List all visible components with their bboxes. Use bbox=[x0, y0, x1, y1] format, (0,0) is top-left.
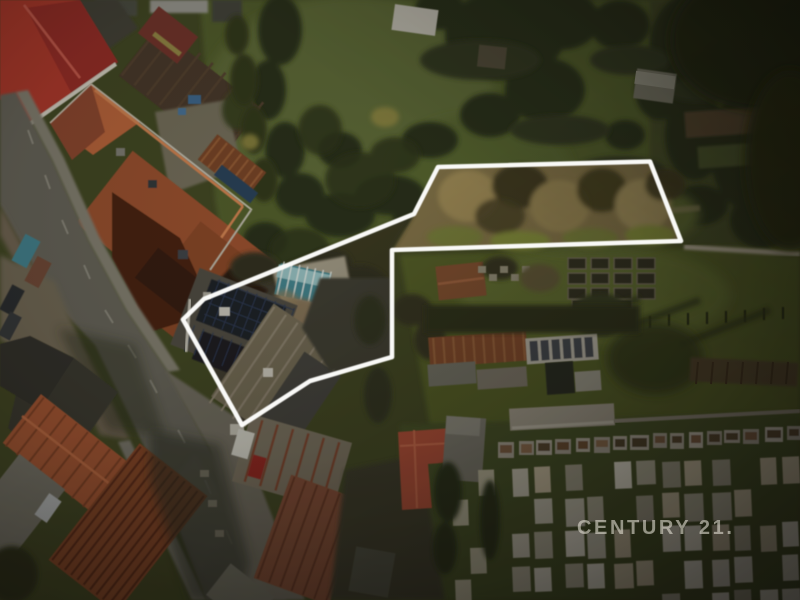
svg-text:CENTURY 21.: CENTURY 21. bbox=[577, 517, 735, 539]
